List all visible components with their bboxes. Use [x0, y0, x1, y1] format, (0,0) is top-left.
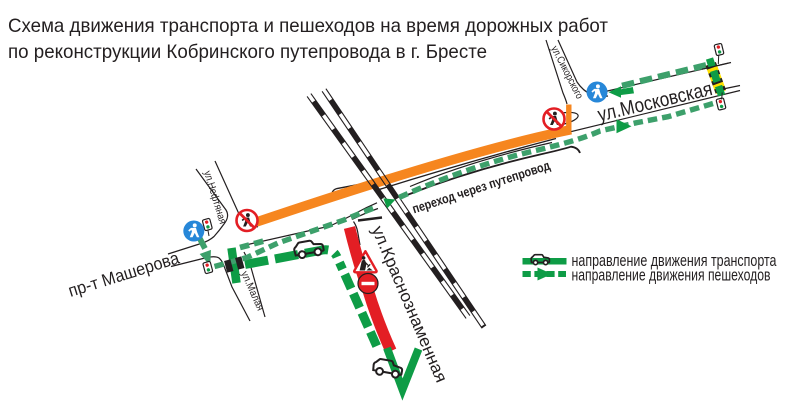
svg-text:по реконструкции Кобринского п: по реконструкции Кобринского путепровода… — [8, 41, 487, 63]
svg-text:направление движения пешеходов: направление движения пешеходов — [572, 266, 771, 285]
svg-text:Схема движения транспорта и пе: Схема движения транспорта и пешеходов на… — [8, 15, 608, 37]
